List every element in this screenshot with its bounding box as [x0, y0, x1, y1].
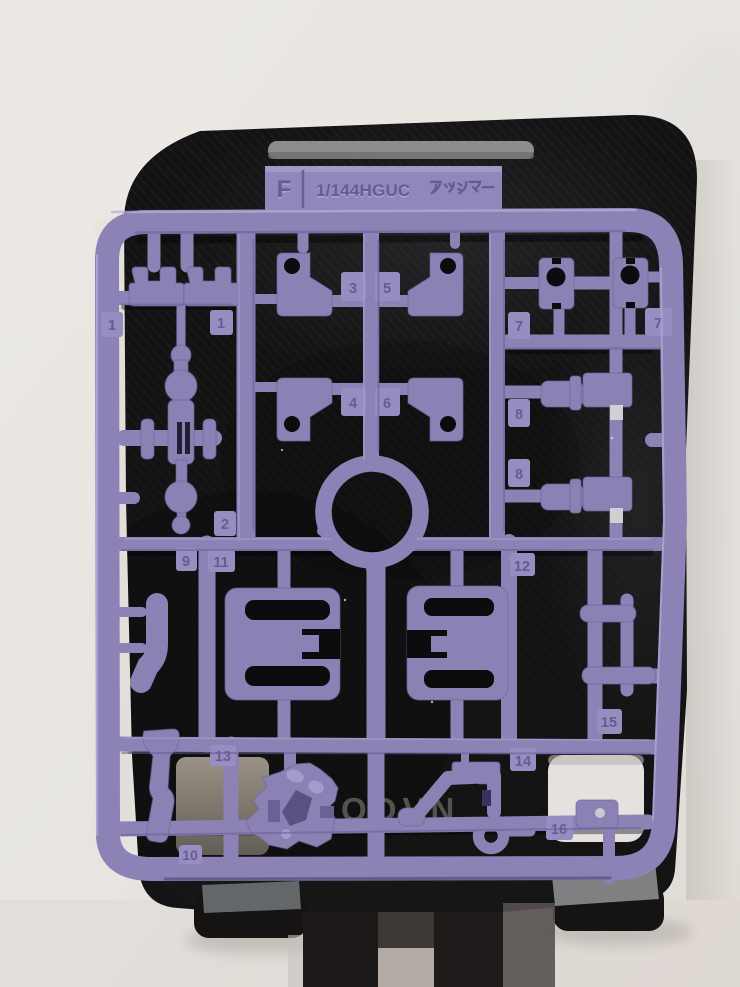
svg-text:6: 6: [383, 396, 391, 412]
svg-text:F: F: [277, 176, 292, 203]
svg-text:4: 4: [349, 396, 357, 412]
svg-text:7: 7: [515, 319, 523, 335]
svg-text:8: 8: [515, 407, 523, 423]
svg-text:10: 10: [182, 847, 198, 863]
svg-text:11: 11: [213, 555, 228, 571]
svg-text:14: 14: [515, 754, 531, 770]
svg-text:5: 5: [383, 281, 391, 297]
svg-text:12: 12: [514, 559, 530, 575]
svg-text:15: 15: [601, 715, 617, 731]
svg-text:13: 13: [215, 749, 231, 765]
svg-text:9: 9: [182, 554, 190, 570]
svg-text:1: 1: [108, 318, 116, 334]
svg-text:3: 3: [349, 281, 357, 297]
svg-text:8: 8: [515, 467, 523, 483]
svg-text:1: 1: [217, 316, 225, 332]
svg-text:2: 2: [221, 517, 229, 533]
svg-text:1/144HGUC: 1/144HGUC: [316, 181, 410, 200]
